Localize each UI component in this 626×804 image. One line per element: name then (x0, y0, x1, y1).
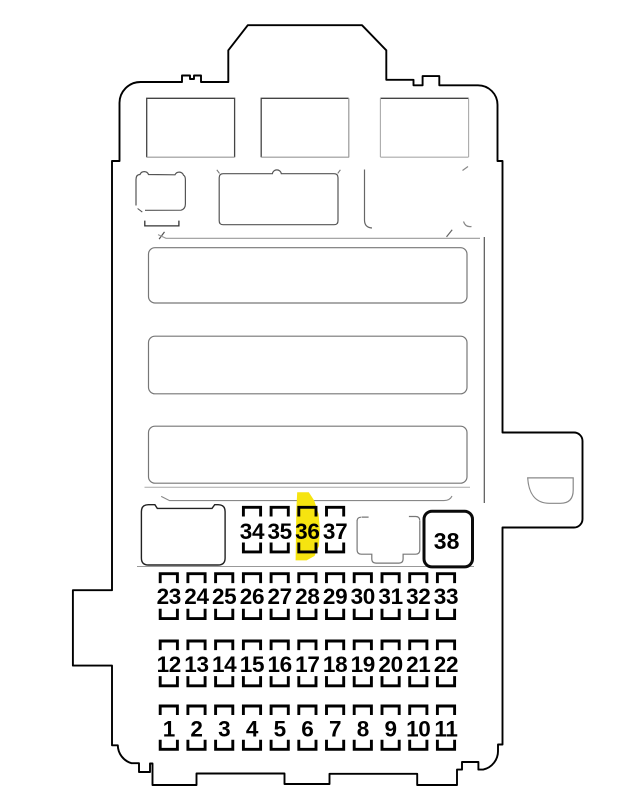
svg-text:35: 35 (267, 519, 291, 544)
svg-text:15: 15 (240, 652, 264, 677)
svg-text:20: 20 (378, 652, 402, 677)
svg-text:16: 16 (267, 652, 291, 677)
svg-text:13: 13 (184, 652, 208, 677)
svg-text:32: 32 (406, 584, 430, 609)
svg-text:8: 8 (357, 716, 369, 741)
svg-text:2: 2 (190, 716, 202, 741)
svg-text:26: 26 (240, 584, 264, 609)
svg-text:7: 7 (329, 716, 341, 741)
svg-text:12: 12 (157, 652, 181, 677)
svg-text:37: 37 (323, 519, 347, 544)
svg-text:9: 9 (384, 716, 396, 741)
svg-text:27: 27 (267, 584, 291, 609)
svg-text:24: 24 (184, 584, 209, 609)
svg-text:30: 30 (351, 584, 375, 609)
svg-text:34: 34 (240, 519, 265, 544)
svg-text:38: 38 (434, 528, 460, 554)
svg-text:1: 1 (163, 716, 175, 741)
svg-text:22: 22 (434, 652, 458, 677)
svg-text:36: 36 (295, 519, 319, 544)
svg-text:18: 18 (323, 652, 347, 677)
svg-text:3: 3 (218, 716, 230, 741)
svg-text:14: 14 (212, 652, 237, 677)
svg-text:11: 11 (434, 716, 457, 741)
svg-text:23: 23 (157, 584, 181, 609)
svg-text:17: 17 (295, 652, 319, 677)
svg-text:10: 10 (406, 716, 430, 741)
svg-text:29: 29 (323, 584, 347, 609)
svg-text:19: 19 (351, 652, 375, 677)
svg-text:28: 28 (295, 584, 319, 609)
svg-text:33: 33 (434, 584, 458, 609)
svg-text:25: 25 (212, 584, 236, 609)
svg-text:21: 21 (406, 652, 430, 677)
svg-text:5: 5 (274, 716, 286, 741)
svg-text:31: 31 (378, 584, 402, 609)
svg-text:6: 6 (301, 716, 313, 741)
svg-text:4: 4 (246, 716, 259, 741)
